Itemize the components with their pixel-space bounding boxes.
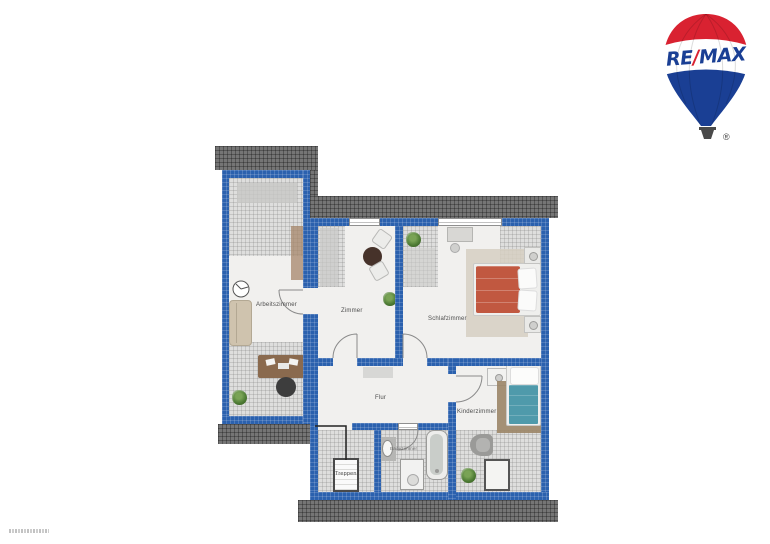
wall — [374, 430, 381, 492]
wall — [318, 358, 333, 366]
wall — [352, 423, 398, 430]
armchair — [470, 434, 493, 456]
wall — [222, 416, 310, 424]
wardrobe — [484, 459, 510, 491]
roof-hatch — [310, 196, 558, 218]
plant — [461, 468, 476, 483]
room-label-badezimmer: Badezimmer — [390, 446, 417, 451]
office-chair — [276, 377, 296, 397]
registered-mark: ® — [723, 132, 730, 142]
wall — [418, 423, 448, 430]
wall — [427, 358, 541, 366]
room-label-treppen: Treppen — [335, 471, 357, 477]
window — [349, 218, 380, 226]
wall — [310, 314, 318, 500]
doormat — [363, 367, 393, 378]
bathtub — [426, 430, 448, 480]
sofa — [229, 300, 252, 346]
window — [398, 423, 418, 430]
roof-hatch — [215, 146, 318, 170]
watermark-text — [9, 529, 49, 533]
wall — [310, 492, 549, 500]
room-label-arbeitszimmer: Arbeitszimmer — [256, 302, 297, 308]
furniture-ghost — [405, 248, 435, 286]
room-label-zimmer: Zimmer — [341, 308, 363, 314]
wall — [357, 358, 403, 366]
wardrobe-ghost — [237, 183, 297, 203]
roof-hatch — [298, 500, 558, 522]
room-label-schlafzimmer: Schlafzimmer — [428, 316, 467, 322]
nightstand — [524, 247, 541, 264]
wall — [303, 170, 310, 288]
room-label-flur: Flur — [375, 395, 386, 401]
floorplan-page: RE/MAX ® — [0, 0, 770, 544]
double-bed — [473, 263, 541, 316]
wall — [541, 218, 549, 500]
plant — [232, 390, 247, 405]
balloon-basket — [699, 127, 716, 139]
wall — [222, 170, 310, 178]
shelf-ghost — [291, 226, 303, 280]
balloon-envelope — [656, 12, 756, 144]
desk — [258, 355, 304, 378]
wall — [303, 314, 310, 424]
window — [438, 218, 502, 226]
wall — [448, 358, 456, 374]
plant — [406, 232, 421, 247]
nightstand — [524, 316, 541, 333]
wall — [222, 170, 229, 424]
wall — [395, 226, 403, 366]
single-bed — [506, 363, 541, 426]
vanity-desk — [447, 227, 473, 242]
remax-balloon-logo: RE/MAX ® — [656, 12, 756, 144]
wall — [310, 218, 318, 288]
room-label-kinderzimmer: Kinderzimmer — [457, 409, 496, 415]
shelf-ghost — [320, 228, 338, 286]
wall — [310, 218, 549, 226]
wall — [448, 402, 456, 500]
washing-machine — [400, 459, 424, 490]
stool — [450, 243, 460, 253]
roof-hatch — [310, 170, 318, 198]
roof-hatch — [218, 424, 310, 444]
